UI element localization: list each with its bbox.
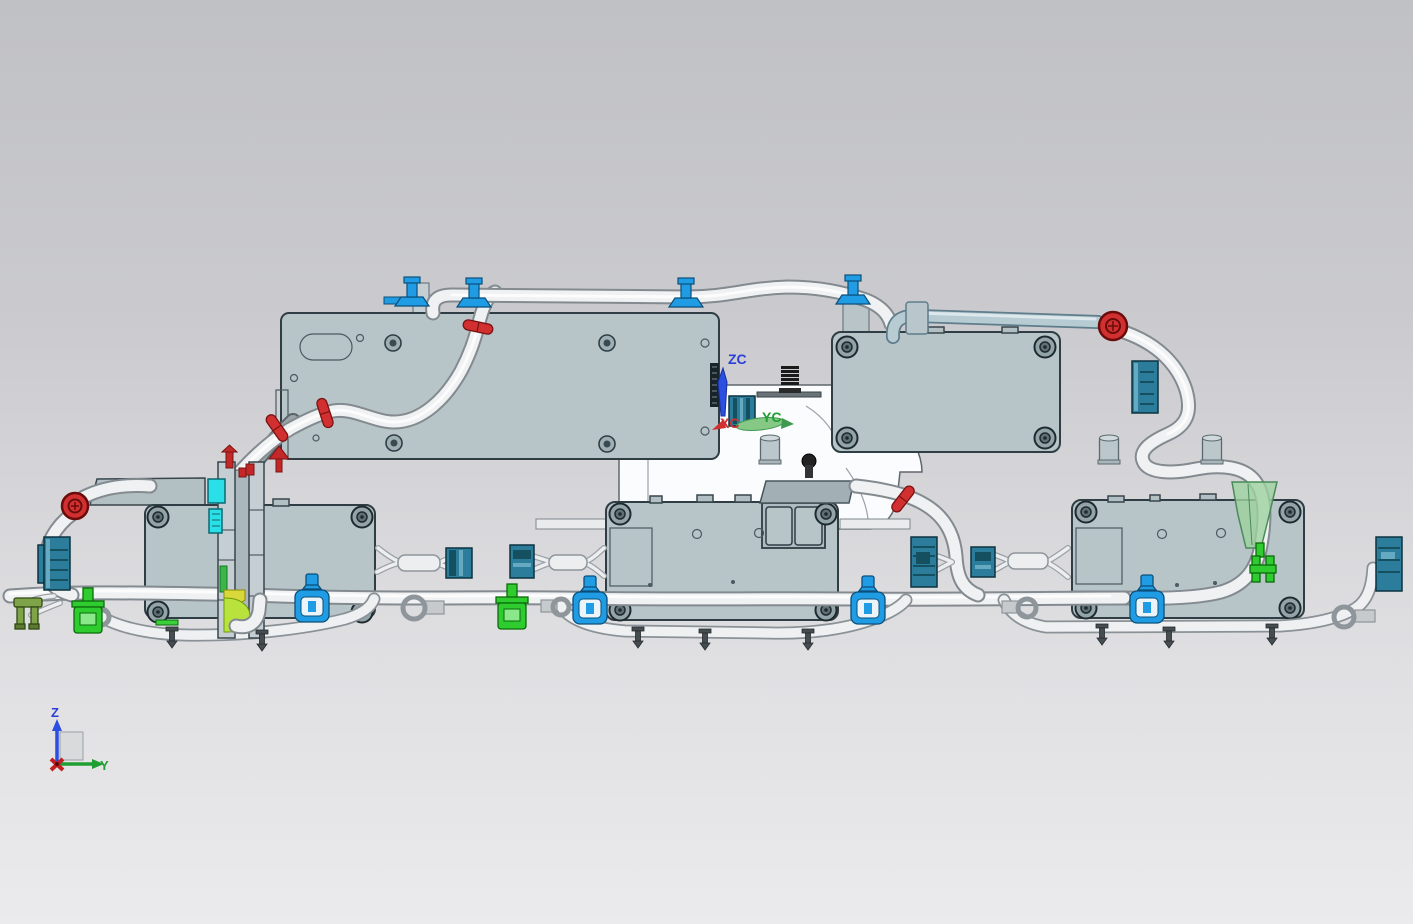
pin-7[interactable]	[1163, 627, 1175, 648]
connector-cyan-2[interactable]	[209, 509, 222, 533]
grommet-red-right[interactable]	[1099, 312, 1127, 340]
ecu-box-top-right[interactable]	[832, 327, 1060, 452]
triad-z-label: Z	[51, 705, 59, 720]
connector-teal-1[interactable]	[446, 548, 472, 578]
clip-blue-bottom-3[interactable]	[851, 576, 885, 624]
green-pad	[156, 620, 178, 625]
threaded-stud[interactable]	[757, 366, 821, 397]
red-retainer	[246, 464, 254, 475]
body-flange-left	[536, 519, 610, 529]
wcs-x-label: XC	[720, 415, 739, 431]
connector-teal-3[interactable]	[971, 547, 995, 577]
wcs-z-label: ZC	[728, 351, 747, 367]
connector-teal-far-right[interactable]	[1376, 537, 1402, 591]
ecu-box-top-left[interactable]	[276, 313, 719, 459]
body-flange-right	[840, 519, 910, 529]
tube-clamp[interactable]	[906, 302, 928, 334]
standoff-1[interactable]	[759, 435, 781, 464]
connector-teal-right-of-box[interactable]	[1132, 361, 1158, 413]
pin-2[interactable]	[256, 630, 268, 651]
triad-y-label: Y	[100, 758, 109, 773]
red-retainer	[239, 468, 246, 477]
connector-cyan-1[interactable]	[208, 479, 225, 503]
shelf-bracket[interactable]	[760, 481, 854, 503]
pin-4[interactable]	[699, 629, 711, 650]
standoff-2[interactable]	[1098, 435, 1120, 464]
pin-6[interactable]	[1096, 624, 1108, 645]
standoff-3[interactable]	[1201, 435, 1223, 464]
cad-viewport: ZC YC XC Z Y	[0, 0, 1413, 924]
connector-teal-2[interactable]	[510, 545, 534, 578]
connector-olive[interactable]	[14, 598, 42, 629]
pin-5[interactable]	[802, 629, 814, 650]
wcs-y-label: YC	[762, 409, 781, 425]
sleeve-1[interactable]	[398, 555, 440, 571]
connector-teal-stack[interactable]	[911, 537, 937, 587]
connector-teal-left-block[interactable]	[38, 537, 70, 590]
sleeve-3[interactable]	[1008, 553, 1048, 569]
view-triad[interactable]: Z Y	[51, 705, 109, 773]
triad-cube	[60, 732, 83, 760]
pin-8[interactable]	[1266, 624, 1278, 645]
sleeve-2[interactable]	[549, 555, 587, 570]
clip-blue-bottom-2[interactable]	[573, 576, 607, 624]
grommet-red-left[interactable]	[62, 493, 88, 519]
green-strip	[220, 566, 227, 592]
